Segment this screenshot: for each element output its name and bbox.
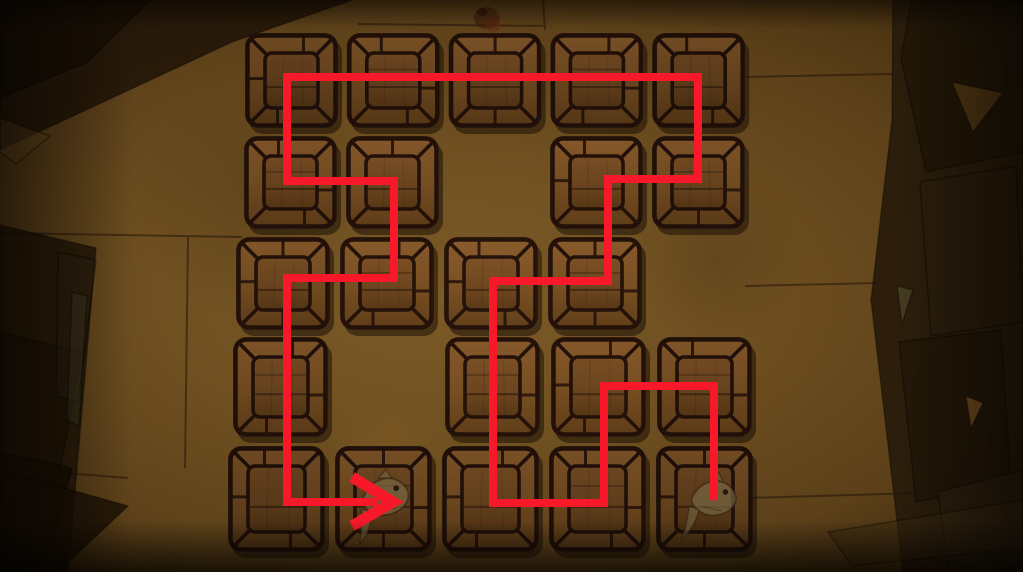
wood-tile-r1c1[interactable]	[245, 33, 342, 134]
wood-tile-r4c1[interactable]	[233, 337, 332, 443]
wood-tile-r2c4[interactable]	[550, 136, 647, 235]
wood-tile-r2c1[interactable]	[244, 136, 341, 235]
wood-tile-r1c4[interactable]	[550, 33, 647, 134]
debris-decal	[474, 7, 501, 32]
wood-tile-r3c4[interactable]	[548, 237, 646, 336]
wood-tile-r1c2[interactable]	[347, 33, 444, 134]
scene-svg	[0, 0, 1023, 572]
game-viewport	[0, 0, 1023, 572]
wood-tile-r3c2[interactable]	[340, 237, 438, 336]
wood-tile-r1c3[interactable]	[449, 33, 546, 134]
